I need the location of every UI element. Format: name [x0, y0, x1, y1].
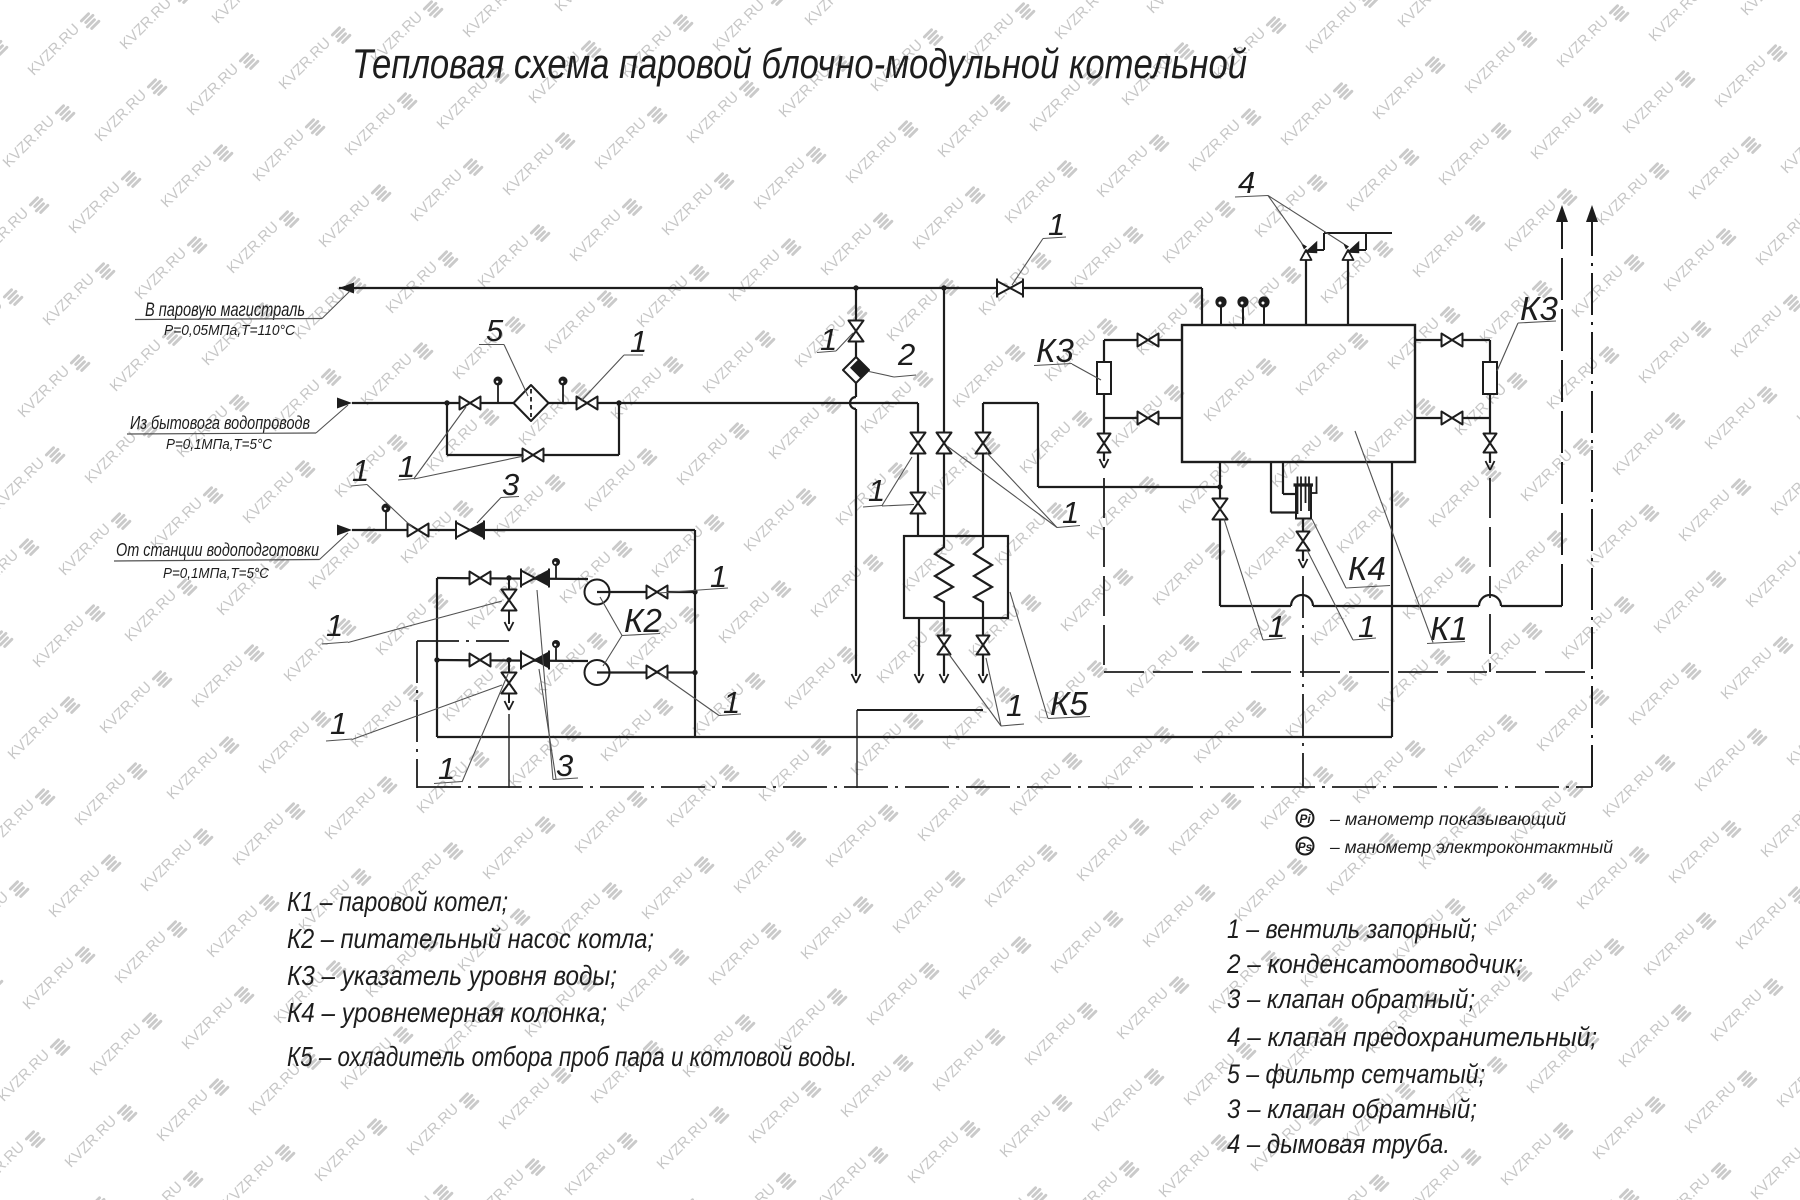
- svg-text:К5 – охладитель отбора проб па: К5 – охладитель отбора проб пара и котло…: [287, 1041, 857, 1072]
- svg-text:5 – фильтр сетчатый;: 5 – фильтр сетчатый;: [1227, 1059, 1485, 1089]
- svg-text:3 – клапан обратный;: 3 – клапан обратный;: [1227, 1094, 1477, 1124]
- svg-text:К1 – паровой котел;: К1 – паровой котел;: [287, 886, 508, 917]
- svg-text:1: 1: [330, 706, 347, 741]
- svg-text:1: 1: [1062, 495, 1079, 530]
- svg-text:3: 3: [556, 748, 573, 783]
- svg-text:– манометр показывающий: – манометр показывающий: [1329, 809, 1566, 829]
- svg-text:1 – вентиль запорный;: 1 – вентиль запорный;: [1227, 914, 1477, 944]
- svg-text:1: 1: [438, 751, 455, 786]
- svg-text:P=0,1МПа,T=5°C: P=0,1МПа,T=5°C: [166, 437, 272, 453]
- svg-text:Ps: Ps: [1298, 840, 1313, 854]
- svg-text:4 – клапан предохранительный;: 4 – клапан предохранительный;: [1227, 1022, 1597, 1052]
- svg-text:1: 1: [352, 453, 369, 488]
- svg-text:4 – дымовая труба.: 4 – дымовая труба.: [1227, 1129, 1450, 1159]
- svg-text:3 – клапан обратный;: 3 – клапан обратный;: [1227, 984, 1475, 1014]
- svg-text:Тепловая схема паровой блочно: Тепловая схема паровой блочно-модульной …: [352, 40, 1247, 87]
- svg-text:1: 1: [1006, 688, 1023, 723]
- svg-text:Из бытовога водопроводв: Из бытовога водопроводв: [130, 413, 310, 433]
- svg-text:Pi: Pi: [1299, 812, 1311, 826]
- svg-text:1: 1: [326, 608, 343, 643]
- svg-text:– манометр электроконтактный: – манометр электроконтактный: [1329, 837, 1613, 857]
- svg-text:1: 1: [868, 473, 885, 508]
- svg-text:4: 4: [1238, 165, 1255, 200]
- svg-text:5: 5: [486, 313, 504, 348]
- svg-text:К2 – питательный насос котла;: К2 – питательный насос котла;: [287, 923, 654, 954]
- svg-text:К3 – указатель уровня воды;: К3 – указатель уровня воды;: [287, 960, 617, 991]
- svg-text:В паровую магистраль: В паровую магистраль: [145, 300, 305, 321]
- svg-text:От станции водоподготовки: От станции водоподготовки: [116, 540, 319, 560]
- svg-text:P=0,1МПа,T=5°C: P=0,1МПа,T=5°C: [163, 566, 269, 582]
- svg-text:К4: К4: [1348, 550, 1386, 587]
- svg-text:2 – конденсатоотводчик;: 2 – конденсатоотводчик;: [1226, 949, 1523, 979]
- svg-text:К4 – уровнемерная колонка;: К4 – уровнемерная колонка;: [287, 997, 607, 1028]
- svg-text:P=0,05МПа,T=110°C: P=0,05МПа,T=110°C: [164, 322, 295, 339]
- svg-text:2: 2: [897, 337, 915, 372]
- svg-text:1: 1: [630, 324, 647, 359]
